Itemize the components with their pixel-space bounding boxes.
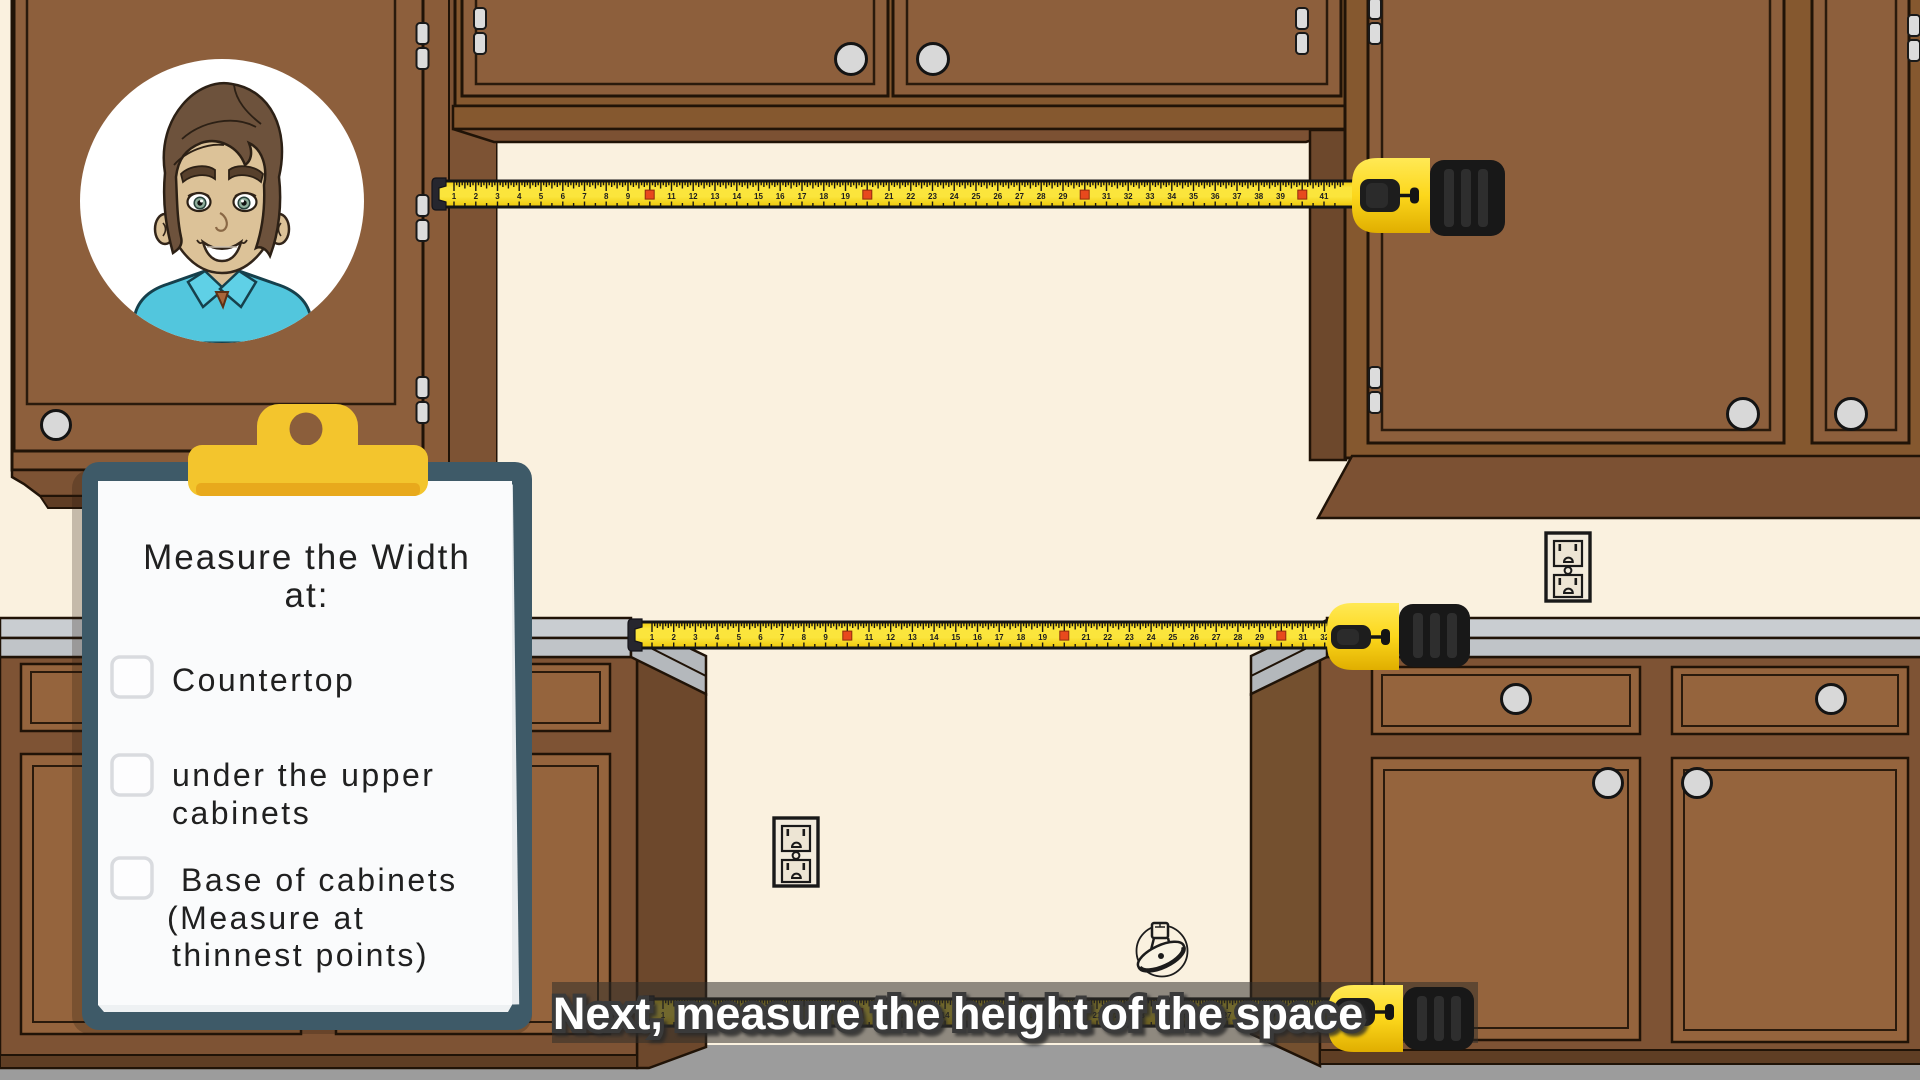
svg-text:28: 28 [1233,633,1242,642]
svg-text:29: 29 [1059,192,1068,201]
svg-text:21: 21 [885,192,894,201]
svg-text:2: 2 [474,192,479,201]
svg-text:6: 6 [561,192,566,201]
svg-text:16: 16 [776,192,785,201]
svg-text:14: 14 [930,633,939,642]
svg-text:31: 31 [1299,633,1308,642]
svg-text:31: 31 [1102,192,1111,201]
svg-text:26: 26 [993,192,1002,201]
svg-text:(Measure at: (Measure at [167,900,365,936]
svg-text:1: 1 [452,192,457,201]
svg-text:7: 7 [780,633,785,642]
svg-text:4: 4 [715,633,720,642]
svg-text:2: 2 [671,633,676,642]
svg-text:15: 15 [951,633,960,642]
svg-text:15: 15 [754,192,763,201]
svg-text:19: 19 [841,192,850,201]
svg-text:22: 22 [1103,633,1112,642]
svg-text:Base of cabinets: Base of cabinets [181,862,458,898]
svg-text:16: 16 [973,633,982,642]
svg-text:Countertop: Countertop [172,662,355,698]
svg-text:24: 24 [950,192,959,201]
svg-text:9: 9 [626,192,631,201]
svg-text:35: 35 [1189,192,1198,201]
svg-text:9: 9 [823,633,828,642]
svg-text:33: 33 [1146,192,1155,201]
svg-text:22: 22 [906,192,915,201]
svg-text:13: 13 [908,633,917,642]
svg-text:36: 36 [1211,192,1220,201]
svg-text:19: 19 [1038,633,1047,642]
svg-text:29: 29 [1255,633,1264,642]
svg-text:34: 34 [1167,192,1176,201]
svg-text:32: 32 [1124,192,1133,201]
svg-text:27: 27 [1015,192,1024,201]
svg-text:41: 41 [1320,192,1329,201]
svg-text:4: 4 [517,192,522,201]
svg-text:under the upper: under the upper [172,757,435,793]
svg-text:5: 5 [539,192,544,201]
svg-text:25: 25 [1168,633,1177,642]
svg-text:27: 27 [1212,633,1221,642]
svg-text:5: 5 [737,633,742,642]
svg-text:28: 28 [1037,192,1046,201]
svg-text:Next, measure the height of th: Next, measure the height of the space [553,988,1363,1039]
svg-text:12: 12 [886,633,895,642]
svg-text:3: 3 [693,633,698,642]
svg-text:25: 25 [972,192,981,201]
svg-text:21: 21 [1082,633,1091,642]
svg-text:23: 23 [1125,633,1134,642]
svg-text:at:: at: [285,576,330,615]
svg-text:37: 37 [1233,192,1242,201]
svg-text:3: 3 [495,192,500,201]
svg-text:17: 17 [995,633,1004,642]
svg-text:13: 13 [711,192,720,201]
svg-text:8: 8 [802,633,807,642]
svg-text:14: 14 [732,192,741,201]
svg-text:18: 18 [819,192,828,201]
svg-text:Measure the Width: Measure the Width [143,538,471,577]
svg-text:39: 39 [1276,192,1285,201]
svg-text:12: 12 [689,192,698,201]
svg-text:18: 18 [1016,633,1025,642]
svg-text:24: 24 [1147,633,1156,642]
svg-text:6: 6 [758,633,763,642]
svg-text:17: 17 [798,192,807,201]
svg-text:7: 7 [582,192,587,201]
svg-text:23: 23 [928,192,937,201]
svg-text:thinnest points): thinnest points) [172,937,429,973]
svg-text:cabinets: cabinets [172,795,311,831]
svg-text:1: 1 [650,633,655,642]
svg-text:26: 26 [1190,633,1199,642]
svg-text:11: 11 [865,633,874,642]
svg-text:38: 38 [1254,192,1263,201]
svg-text:11: 11 [667,192,676,201]
svg-text:8: 8 [604,192,609,201]
